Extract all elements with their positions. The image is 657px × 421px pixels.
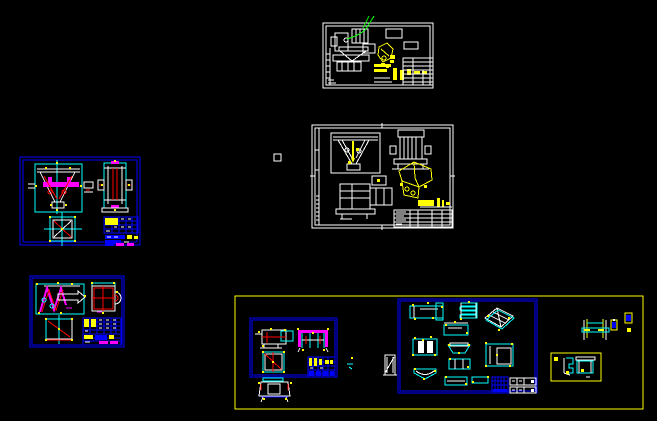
view-mixer-side[interactable] [390,130,431,169]
part-channel[interactable] [412,336,437,356]
loose-marks[interactable] [347,355,397,375]
sheet-main-assembly[interactable] [310,123,455,230]
table-subsheet1[interactable] [308,357,335,377]
shaft-detail[interactable] [582,319,609,340]
view-fixture-front[interactable] [28,160,93,214]
view-stand-top[interactable] [262,351,285,373]
part-housing[interactable] [485,342,513,367]
part-stacked-plates[interactable] [460,301,477,320]
small-part-box[interactable] [551,353,601,381]
parts-table-lowerleft-sheet[interactable] [83,318,121,345]
sheet-top-assembly[interactable] [323,16,433,88]
view-hopper-below[interactable] [258,378,292,402]
square-marker[interactable] [274,154,281,161]
subsheet-stand-views[interactable] [250,318,337,377]
cad-canvas[interactable] [0,0,657,421]
sheet-lower-left-detail[interactable] [30,276,124,347]
view-mixer-small[interactable] [255,328,293,348]
view-stand[interactable] [297,328,329,352]
small-clip-part[interactable] [611,319,617,330]
title-block-main-sheet[interactable] [394,198,452,227]
view-square-plate[interactable] [45,315,73,344]
part-small-box[interactable] [444,321,468,335]
yellow-iso-hopper[interactable] [399,162,432,198]
part-notched-plate[interactable] [449,358,470,369]
view-mixer-front[interactable] [331,133,380,173]
part-bars[interactable] [445,376,489,385]
view-cross-plate[interactable] [91,282,121,314]
view-base-frame[interactable] [336,176,392,219]
part-bracket[interactable] [410,302,443,320]
model-space[interactable] [0,0,657,421]
part-iso-plate[interactable] [485,308,514,331]
view-fixture-top[interactable] [44,212,82,246]
subsheet-part-details[interactable] [398,299,537,393]
part-trapezoid[interactable] [448,343,470,354]
view-weldment[interactable] [36,282,86,314]
small-block-part[interactable] [625,313,632,332]
part-curved[interactable] [414,368,436,380]
panel-bottom-parts[interactable] [235,296,643,409]
sheet-left-fixture[interactable] [20,157,140,246]
view-fixture-side[interactable] [98,160,132,212]
